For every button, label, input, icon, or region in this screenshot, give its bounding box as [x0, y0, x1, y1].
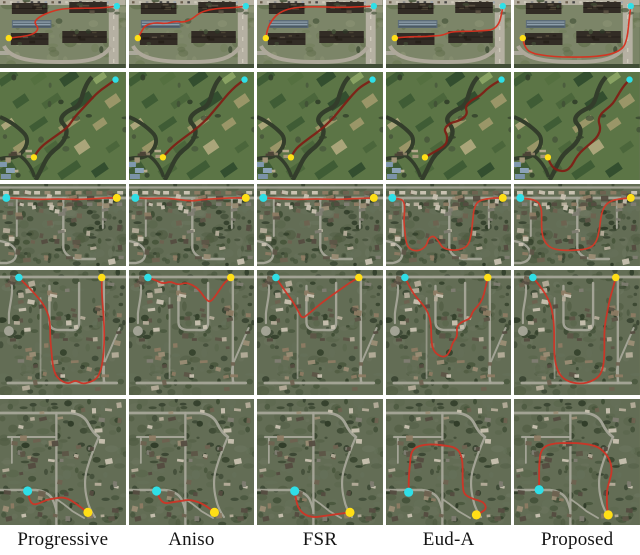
map-cell-r4c2	[129, 270, 255, 395]
satellite-background	[129, 184, 255, 266]
yellow-marker	[263, 35, 269, 41]
column-label-fsr: FSR	[257, 529, 383, 551]
cyan-marker	[272, 274, 280, 282]
cyan-marker	[627, 76, 633, 82]
yellow-marker	[31, 154, 37, 160]
satellite-background	[129, 0, 255, 68]
satellite-background	[386, 270, 512, 395]
satellite-tile	[0, 72, 126, 180]
satellite-tile	[129, 184, 255, 266]
satellite-tile	[257, 0, 383, 68]
map-cell-r5c4	[386, 399, 512, 525]
cyan-marker	[499, 3, 505, 9]
method-comparison-figure: Progressive Aniso FSR Eud-A Proposed	[0, 0, 640, 555]
satellite-tile	[514, 270, 640, 395]
yellow-marker	[241, 194, 249, 202]
satellite-tile	[257, 399, 383, 525]
map-cell-r5c1	[0, 399, 126, 525]
column-label-proposed: Proposed	[514, 529, 640, 551]
satellite-background	[386, 399, 512, 525]
yellow-marker	[6, 35, 12, 41]
satellite-tile	[386, 270, 512, 395]
cyan-marker	[260, 194, 268, 202]
satellite-tile	[257, 270, 383, 395]
yellow-marker	[288, 154, 294, 160]
map-cell-r3c2	[129, 184, 255, 266]
cyan-marker	[114, 3, 120, 9]
cyan-marker	[144, 274, 152, 282]
satellite-background	[0, 72, 126, 180]
satellite-tile	[257, 184, 383, 266]
satellite-tile	[514, 184, 640, 266]
satellite-tile	[386, 184, 512, 266]
map-cell-r2c1	[0, 72, 126, 180]
figure-row-2	[0, 72, 640, 180]
cyan-marker	[401, 274, 409, 282]
satellite-background	[386, 72, 512, 180]
cyan-marker	[388, 194, 396, 202]
satellite-tile	[129, 270, 255, 395]
yellow-marker	[83, 508, 92, 517]
map-cell-r3c1	[0, 184, 126, 266]
map-cell-r2c4	[386, 72, 512, 180]
yellow-marker	[422, 154, 428, 160]
satellite-tile	[0, 270, 126, 395]
map-cell-r1c4	[386, 0, 512, 68]
map-cell-r1c1	[0, 0, 126, 68]
map-cell-r5c3	[257, 399, 383, 525]
column-labels: Progressive Aniso FSR Eud-A Proposed	[0, 525, 640, 555]
satellite-background	[514, 399, 640, 525]
map-cell-r3c4	[386, 184, 512, 266]
satellite-background	[257, 72, 383, 180]
map-cell-r4c5	[514, 270, 640, 395]
satellite-tile	[514, 399, 640, 525]
satellite-tile	[129, 72, 255, 180]
map-cell-r3c3	[257, 184, 383, 266]
yellow-marker	[159, 154, 165, 160]
satellite-background	[0, 399, 126, 525]
yellow-marker	[134, 35, 140, 41]
cyan-marker	[535, 485, 544, 494]
figure-row-3	[0, 184, 640, 266]
yellow-marker	[604, 510, 613, 519]
map-cell-r1c5	[514, 0, 640, 68]
satellite-tile	[257, 72, 383, 180]
yellow-marker	[370, 194, 378, 202]
map-cell-r4c4	[386, 270, 512, 395]
satellite-tile	[386, 72, 512, 180]
cyan-marker	[628, 3, 634, 9]
cyan-marker	[498, 76, 504, 82]
satellite-background	[0, 0, 126, 68]
satellite-background	[257, 0, 383, 68]
map-cell-r2c2	[129, 72, 255, 180]
satellite-background	[257, 399, 383, 525]
cyan-marker	[112, 76, 118, 82]
column-label-eud-a: Eud-A	[386, 529, 512, 551]
cyan-marker	[517, 194, 525, 202]
cyan-marker	[152, 486, 161, 495]
satellite-tile	[514, 72, 640, 180]
yellow-marker	[209, 508, 218, 517]
satellite-background	[386, 0, 512, 68]
cyan-marker	[23, 486, 32, 495]
column-label-aniso: Aniso	[129, 529, 255, 551]
figure-row-4	[0, 270, 640, 395]
map-cell-r3c5	[514, 184, 640, 266]
satellite-tile	[0, 184, 126, 266]
yellow-marker	[545, 154, 551, 160]
satellite-background	[514, 184, 640, 266]
cyan-marker	[290, 486, 299, 495]
figure-row-1	[0, 0, 640, 68]
satellite-background	[129, 399, 255, 525]
yellow-marker	[227, 274, 235, 282]
satellite-background	[514, 72, 640, 180]
map-cell-r2c5	[514, 72, 640, 180]
satellite-background	[129, 72, 255, 180]
map-cell-r1c2	[129, 0, 255, 68]
map-cell-r5c2	[129, 399, 255, 525]
cyan-marker	[404, 488, 413, 497]
yellow-marker	[391, 35, 397, 41]
yellow-marker	[499, 194, 507, 202]
cyan-marker	[242, 3, 248, 9]
cyan-marker	[15, 274, 23, 282]
satellite-tile	[514, 0, 640, 68]
satellite-tile	[386, 0, 512, 68]
satellite-tile	[129, 399, 255, 525]
map-cell-r5c5	[514, 399, 640, 525]
yellow-marker	[520, 35, 526, 41]
yellow-marker	[346, 508, 355, 517]
yellow-marker	[472, 510, 481, 519]
cyan-marker	[2, 194, 10, 202]
cyan-marker	[131, 194, 139, 202]
map-cell-r4c3	[257, 270, 383, 395]
yellow-marker	[612, 274, 620, 282]
satellite-background	[257, 184, 383, 266]
map-cell-r4c1	[0, 270, 126, 395]
map-cell-r1c3	[257, 0, 383, 68]
cyan-marker	[530, 274, 538, 282]
satellite-background	[0, 270, 126, 395]
satellite-background	[129, 270, 255, 395]
satellite-tile	[129, 0, 255, 68]
yellow-marker	[98, 274, 106, 282]
map-cell-r2c3	[257, 72, 383, 180]
satellite-tile	[0, 0, 126, 68]
satellite-background	[257, 270, 383, 395]
satellite-background	[514, 270, 640, 395]
yellow-marker	[113, 194, 121, 202]
cyan-marker	[371, 3, 377, 9]
figure-row-5	[0, 399, 640, 525]
column-label-progressive: Progressive	[0, 529, 126, 551]
cyan-marker	[241, 76, 247, 82]
satellite-tile	[0, 399, 126, 525]
comparison-grid	[0, 0, 640, 525]
satellite-background	[0, 184, 126, 266]
yellow-marker	[484, 274, 492, 282]
satellite-tile	[386, 399, 512, 525]
yellow-marker	[627, 194, 635, 202]
cyan-marker	[370, 76, 376, 82]
yellow-marker	[355, 274, 363, 282]
